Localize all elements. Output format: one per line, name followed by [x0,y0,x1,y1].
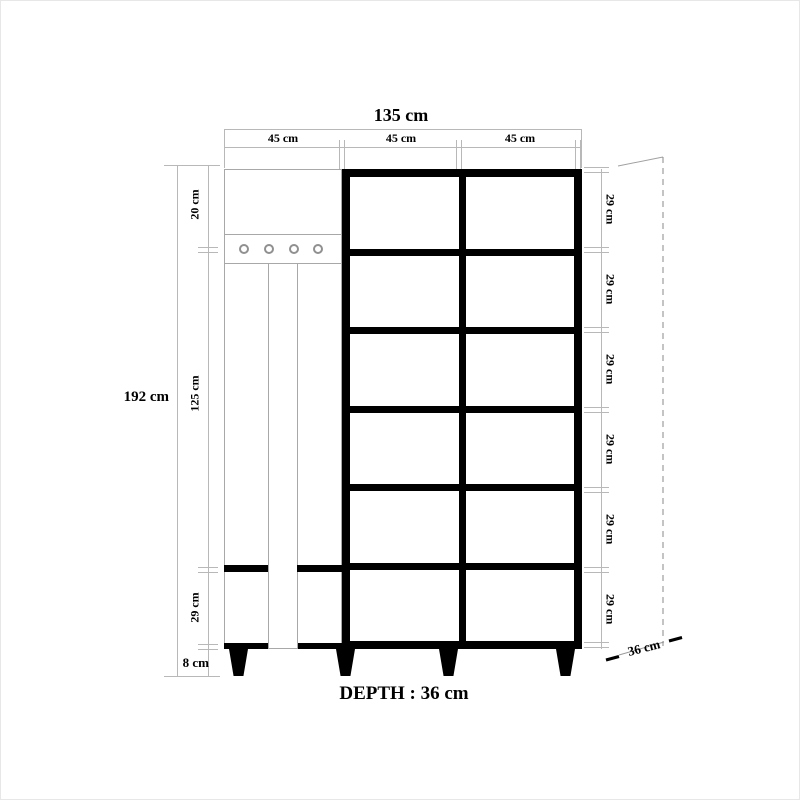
furniture-leg [556,649,575,676]
arrow-tick [606,657,619,661]
vertical-divider-line [297,264,298,649]
base-panel [224,643,268,649]
dim-tick [584,642,609,643]
shoe-compartment [466,413,575,485]
column-width-dim-line [224,147,581,148]
dim-tick [584,567,609,568]
shoe-compartment [350,570,459,642]
furniture-leg [229,649,248,676]
row-height-label: 29 cm [602,569,618,649]
dim-tick [198,572,218,573]
shoe-compartment [466,491,575,563]
shoe-rack-grid [342,169,582,649]
furniture-dimension-drawing: 135 cm 45 cm 45 cm 45 cm 192 cm 20 cm 12… [0,0,800,800]
dim-tick [584,407,609,408]
segment-label-top: 20 cm [188,178,203,232]
dim-extension-line [224,129,225,168]
dim-tick [584,487,609,488]
dim-tick [198,247,218,248]
shoe-compartment [466,177,575,249]
total-width-dim-line [224,129,581,130]
arrow-tick [669,638,682,642]
shoe-compartment [350,334,459,406]
base-panel [298,643,342,649]
coat-hook-knob [264,244,274,254]
shoe-compartment [466,256,575,328]
column-width-label: 45 cm [351,131,451,146]
dim-tick [584,332,609,333]
furniture-leg [336,649,355,676]
depth-dim-line [619,642,664,655]
shoe-compartment [350,491,459,563]
dim-tick [344,140,345,169]
segment-label-base: 8 cm [159,655,209,671]
dim-extension-line [581,129,582,168]
dim-tick [198,252,218,253]
segment-label-middle: 125 cm [188,367,203,421]
segment-height-dim-line [208,165,209,676]
dim-tick [198,644,218,645]
dim-extension-line [164,165,220,166]
shoe-compartment [350,413,459,485]
depth-diagonal-label: 36 cm [626,636,662,659]
coat-hook-knob [289,244,299,254]
dim-tick [456,140,457,169]
dim-tick [584,572,609,573]
bench-shelf [297,565,342,572]
furniture-leg [439,649,458,676]
segment-label-lower: 29 cm [188,581,203,635]
column-width-label: 45 cm [233,131,333,146]
shoe-compartment [466,570,575,642]
dim-tick [339,140,340,169]
coat-hook-knob [313,244,323,254]
dim-tick [580,140,581,169]
dim-tick [584,327,609,328]
dim-tick [584,167,609,168]
dim-tick [584,412,609,413]
dim-tick [584,172,609,173]
dim-tick [584,647,609,648]
total-width-label: 135 cm [341,105,461,126]
row-height-label: 29 cm [602,409,618,489]
row-height-label: 29 cm [602,169,618,249]
dim-tick [584,252,609,253]
row-height-label: 29 cm [602,329,618,409]
dim-extension-line [164,676,220,677]
row-height-label: 29 cm [602,249,618,329]
dim-tick [461,140,462,169]
shoe-compartment [350,177,459,249]
total-height-label: 192 cm [119,389,169,406]
perspective-edge-line [618,157,663,166]
dim-tick [198,649,218,650]
shoe-compartment [466,334,575,406]
dim-tick [575,140,576,169]
total-height-dim-line [177,165,178,676]
column-width-label: 45 cm [470,131,570,146]
dim-tick [584,492,609,493]
shoe-compartment [350,256,459,328]
coat-hook-knob [239,244,249,254]
vertical-divider-line [268,264,269,649]
dim-tick [198,567,218,568]
bench-shelf [224,565,268,572]
dim-tick [584,247,609,248]
row-height-label: 29 cm [602,489,618,569]
depth-note-label: DEPTH : 36 cm [289,683,519,705]
